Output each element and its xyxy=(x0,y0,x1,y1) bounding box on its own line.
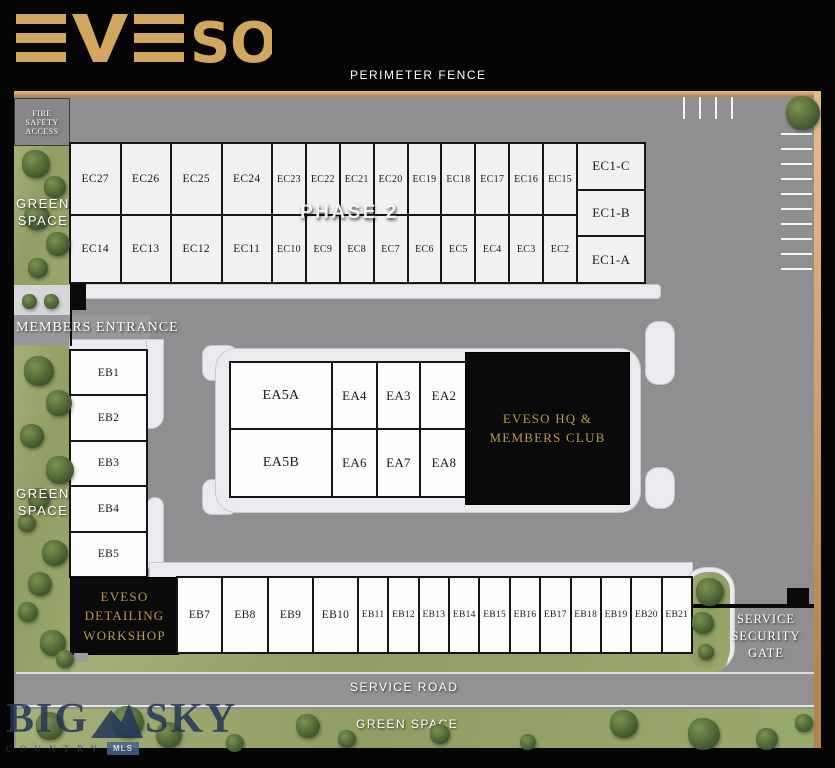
green-space-top-label: GREEN SPACE xyxy=(14,196,72,230)
perimeter-fence-label: PERIMETER FENCE xyxy=(350,68,487,82)
tree-icon xyxy=(696,578,724,606)
unit-cell: EA3 xyxy=(377,362,420,429)
tree-icon xyxy=(44,294,59,309)
unit-cell: EC2 xyxy=(543,215,577,283)
mls-watermark: BIG SKY COUNTRY MLS xyxy=(6,702,237,755)
tree-icon xyxy=(28,572,52,596)
unit-cell: EC15 xyxy=(543,143,577,215)
unit-cell: EB2 xyxy=(70,395,147,440)
fire-safety-access-zone: FIRE SAFETY ACCESS xyxy=(14,98,70,146)
unit-cell: EB21 xyxy=(662,577,692,653)
unit-cell: EB13 xyxy=(419,577,449,653)
unit-cell: EA8 xyxy=(420,429,468,497)
ec1-block: EC1-C EC1-B EC1-A xyxy=(577,143,645,283)
unit-cell: EB5 xyxy=(70,532,147,577)
tree-icon xyxy=(756,728,778,750)
logo-v-icon xyxy=(72,14,128,62)
unit-cell: EC1-C xyxy=(577,143,645,190)
unit-cell: EA5B xyxy=(230,429,332,497)
eb-bottom-block: EB7 EB8 EB9 EB10 EB11 EB12 EB13 EB14 EB1… xyxy=(177,577,692,653)
tree-icon xyxy=(338,730,356,748)
tree-icon xyxy=(42,540,68,566)
detailing-workshop-label: EVESO DETAILING WORKSHOP xyxy=(79,587,171,646)
unit-cell: EA4 xyxy=(332,362,377,429)
tree-icon xyxy=(795,714,813,732)
unit-cell: EB8 xyxy=(222,577,268,653)
unit-cell: EB14 xyxy=(449,577,479,653)
detailing-workshop-building: EVESO DETAILING WORKSHOP xyxy=(70,577,179,655)
tree-icon xyxy=(44,176,66,198)
unit-cell: EA7 xyxy=(377,429,420,497)
security-gate-house xyxy=(787,588,809,605)
unit-cell: EB19 xyxy=(601,577,631,653)
logo-e1-bars-icon xyxy=(16,14,66,62)
unit-cell: EB11 xyxy=(358,577,388,653)
perimeter-fence-right xyxy=(814,91,821,748)
unit-cell: EB10 xyxy=(313,577,358,653)
tree-icon xyxy=(28,258,48,278)
unit-cell: EC10 xyxy=(272,215,306,283)
eveso-logo: S O EVESO xyxy=(14,9,272,69)
unit-cell: EC4 xyxy=(475,215,509,283)
tree-icon xyxy=(430,724,450,744)
tree-icon xyxy=(24,356,54,386)
unit-cell: EB12 xyxy=(388,577,418,653)
unit-cell: EC12 xyxy=(171,215,222,283)
service-security-gate-label: SERVICE SECURITY GATE xyxy=(718,611,814,662)
unit-cell: EC8 xyxy=(340,215,374,283)
unit-cell: EC3 xyxy=(509,215,543,283)
unit-cell: EC24 xyxy=(222,143,273,215)
unit-cell: EB20 xyxy=(631,577,661,653)
mountain-icon xyxy=(91,702,143,738)
tree-icon xyxy=(520,734,536,750)
tree-icon xyxy=(46,390,72,416)
tree-icon xyxy=(18,602,38,622)
tree-icon xyxy=(610,710,638,738)
service-road-label: SERVICE ROAD xyxy=(350,680,458,694)
fire-safety-access-label: FIRE SAFETY ACCESS xyxy=(15,109,69,136)
unit-cell: EC19 xyxy=(408,143,442,215)
watermark-country: COUNTRY xyxy=(6,744,105,754)
unit-cell: EB15 xyxy=(479,577,509,653)
phase2-label: PHASE 2 xyxy=(300,202,399,224)
logo-e2-bars-icon xyxy=(134,14,184,62)
unit-cell: EC1-B xyxy=(577,190,645,237)
unit-cell: EC11 xyxy=(222,215,273,283)
unit-cell: EB18 xyxy=(571,577,601,653)
unit-cell: EB16 xyxy=(510,577,540,653)
unit-cell: EB4 xyxy=(70,486,147,531)
tree-icon xyxy=(22,294,37,309)
unit-cell: EB1 xyxy=(70,350,147,395)
members-entrance-label: MEMBERS ENTRANCE xyxy=(16,320,179,336)
sidewalk-north xyxy=(82,285,660,298)
eveso-hq-building: EVESO HQ & MEMBERS CLUB xyxy=(465,352,630,505)
unit-cell: EC7 xyxy=(374,215,408,283)
unit-cell: EC5 xyxy=(441,215,475,283)
unit-cell: EC9 xyxy=(306,215,340,283)
sidewalk-ebcol-right xyxy=(147,340,163,428)
unit-cell: EB9 xyxy=(268,577,313,653)
unit-cell: EB3 xyxy=(70,441,147,486)
logo-letter-s: S xyxy=(190,11,230,69)
unit-cell: EA5A xyxy=(230,362,332,429)
tree-icon xyxy=(692,612,714,634)
watermark-sky: SKY xyxy=(145,702,237,738)
unit-cell: EC16 xyxy=(509,143,543,215)
tree-icon xyxy=(46,232,70,256)
eb-left-block: EB1 EB2 EB3 EB4 EB5 xyxy=(70,350,147,577)
workshop-step xyxy=(74,653,88,662)
tree-icon xyxy=(22,150,50,178)
unit-cell: EC6 xyxy=(408,215,442,283)
unit-cell: EC18 xyxy=(441,143,475,215)
unit-cell: EC1-A xyxy=(577,236,645,283)
unit-cell: EA6 xyxy=(332,429,377,497)
watermark-big: BIG xyxy=(6,702,89,738)
tree-icon xyxy=(786,96,820,130)
ea-block: EA5A EA4 EA3 EA2 EA5B EA6 EA7 EA8 xyxy=(230,362,468,497)
sidewalk-blob-right-lower xyxy=(646,468,674,508)
unit-cell: EC14 xyxy=(70,215,121,283)
tree-icon xyxy=(688,718,720,750)
sidewalk-blob-right-upper xyxy=(646,322,674,384)
tree-icon xyxy=(296,714,320,738)
green-space-mid-label: GREEN SPACE xyxy=(14,486,72,520)
parking-lines-right xyxy=(781,133,812,278)
unit-cell: EC17 xyxy=(475,143,509,215)
parking-lines-top xyxy=(683,97,736,119)
logo-letter-o: O xyxy=(230,11,272,69)
members-gate-marker xyxy=(70,284,86,310)
mls-badge: MLS xyxy=(107,742,139,755)
unit-cell: EB17 xyxy=(540,577,570,653)
unit-cell: EC13 xyxy=(121,215,172,283)
tree-icon xyxy=(46,456,74,484)
tree-icon xyxy=(20,424,44,448)
unit-cell: EA2 xyxy=(420,362,468,429)
unit-cell: EC26 xyxy=(121,143,172,215)
sidewalk-ebrow-top xyxy=(150,563,692,578)
unit-cell: EC25 xyxy=(171,143,222,215)
unit-cell: EC27 xyxy=(70,143,121,215)
eveso-hq-label: EVESO HQ & MEMBERS CLUB xyxy=(478,410,618,446)
tree-icon xyxy=(56,650,74,668)
unit-cell: EB7 xyxy=(177,577,222,653)
sidewalk-ebcol-lower xyxy=(147,498,163,568)
site-plan-page: FIRE SAFETY ACCESS EC27 EC26 EC25 EC24 E… xyxy=(0,0,835,768)
tree-icon xyxy=(698,644,714,660)
